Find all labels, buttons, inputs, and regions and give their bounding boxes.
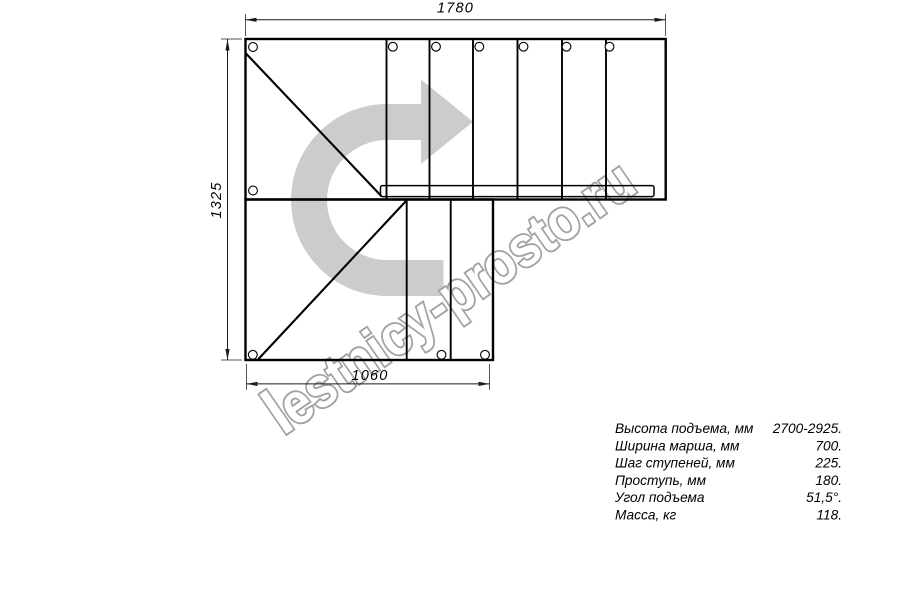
svg-text:1060: 1060 (351, 368, 388, 384)
svg-text:Шаг ступеней, мм: Шаг ступеней, мм (615, 456, 735, 471)
svg-text:1325: 1325 (209, 181, 225, 218)
svg-text:Высота подъема, мм: Высота подъема, мм (615, 421, 754, 436)
svg-text:Масса, кг: Масса, кг (615, 508, 677, 523)
svg-text:118.: 118. (816, 508, 842, 523)
svg-text:Проступь, мм: Проступь, мм (615, 473, 707, 488)
svg-text:225.: 225. (814, 456, 842, 471)
svg-text:Ширина марша, мм: Ширина марша, мм (615, 438, 740, 453)
svg-text:700.: 700. (815, 438, 842, 453)
svg-text:1780: 1780 (437, 1, 474, 17)
svg-text:2700-2925.: 2700-2925. (772, 421, 842, 436)
svg-text:180.: 180. (815, 473, 842, 488)
svg-text:51,5°.: 51,5°. (806, 490, 842, 505)
svg-text:Угол подъема: Угол подъема (614, 490, 705, 505)
